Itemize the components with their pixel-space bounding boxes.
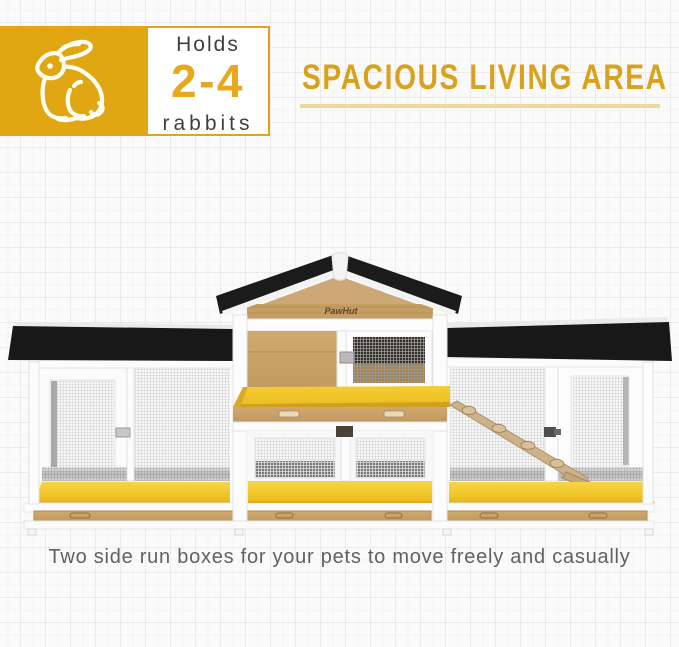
svg-text:PawHut: PawHut: [324, 306, 358, 316]
